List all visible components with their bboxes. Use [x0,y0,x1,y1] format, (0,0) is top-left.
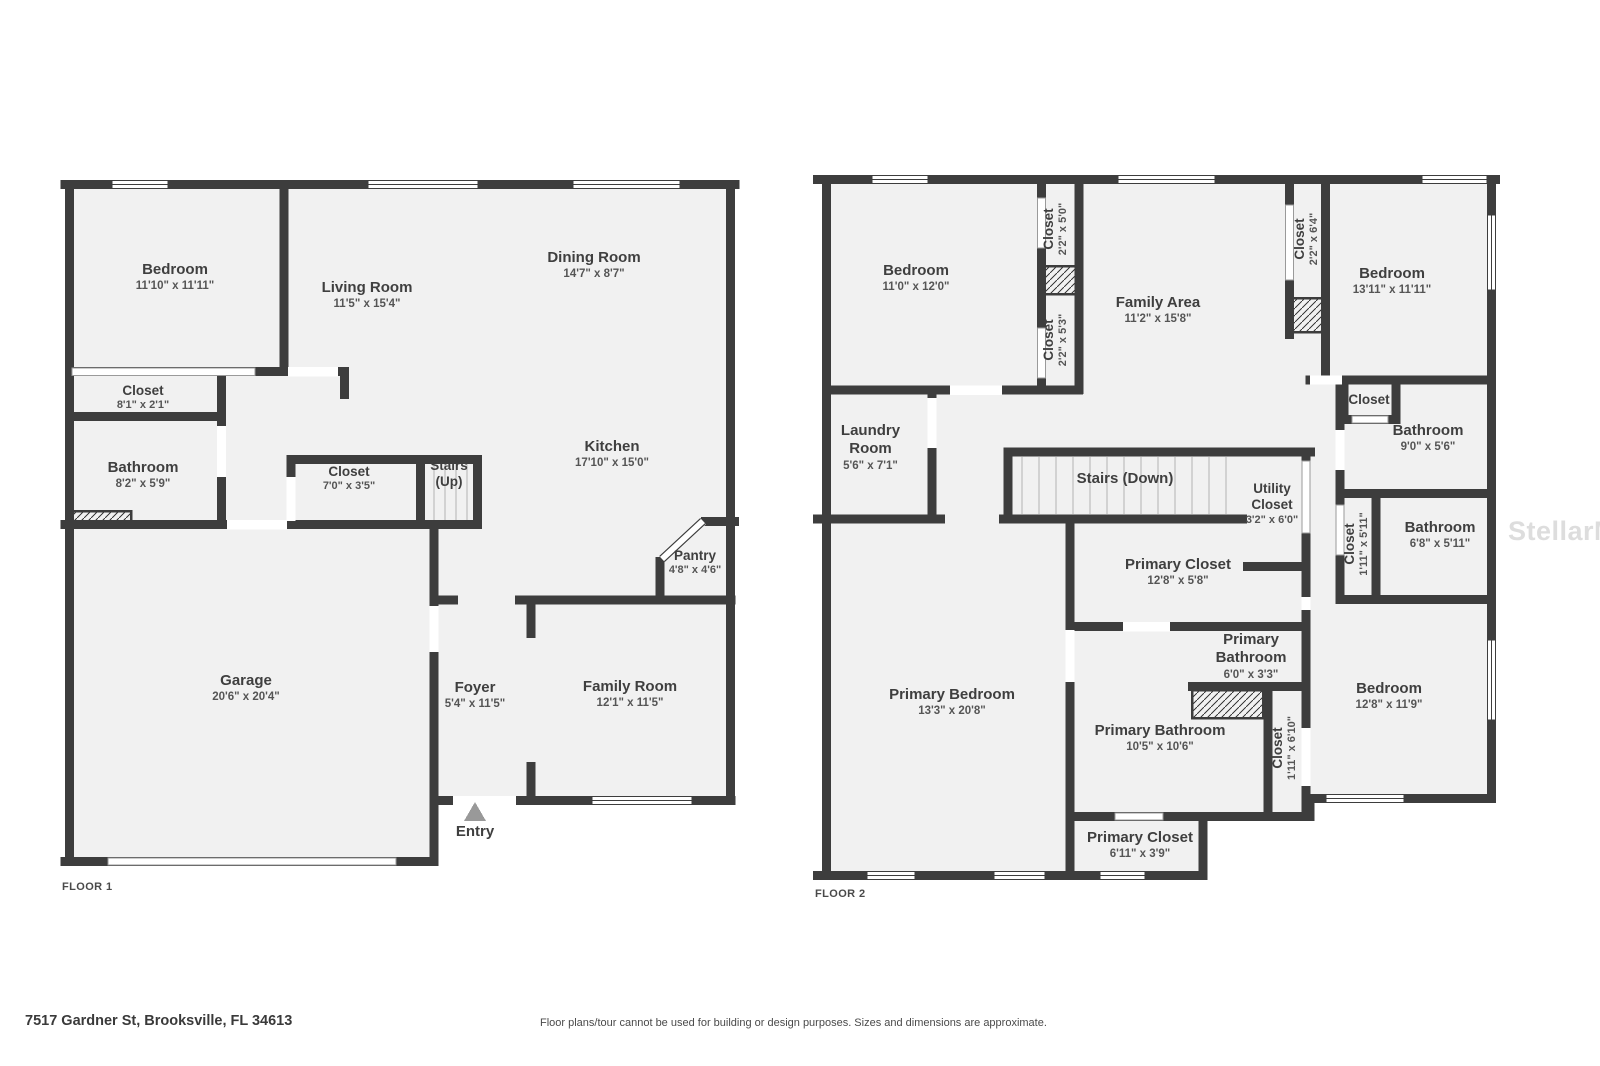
room-label-pantry: Pantry 4'8" x 4'6" [669,548,721,578]
room-label-foyer: Foyer 5'4" x 11'5" [445,679,506,711]
room-label-closet-b: Closet 7'0" x 3'5" [323,464,375,494]
room-label-primary-bathroom-2: Primary Bathroom 10'5" x 10'6" [1095,722,1226,754]
room-label-bathroom-2: Bathroom 6'8" x 5'11" [1405,519,1476,551]
room-label-primary-closet-2: Primary Closet 6'11" x 3'9" [1087,829,1193,861]
room-label-closet-top-1: Closet 2'2" x 5'0" [1041,203,1071,255]
room-label-bathroom-1: Bathroom 9'0" x 5'6" [1393,422,1464,454]
room-label-closet-mid: Closet [1348,392,1389,408]
room-label-kitchen: Kitchen 17'10" x 15'0" [575,438,649,470]
floorplan-canvas: Bedroom 11'10" x 11'11" Living Room 11'5… [0,0,1600,1066]
room-label-living-room: Living Room 11'5" x 15'4" [322,279,413,311]
room-label-garage: Garage 20'6" x 20'4" [212,672,280,704]
room-label-primary-bathroom-1: Primary Bathroom 6'0" x 3'3" [1196,631,1306,682]
stellar-mls-watermark: StellarMLS [1508,516,1600,547]
room-label-closet-top-2: Closet 2'2" x 5'3" [1041,314,1071,366]
room-label-stairs-up: Stairs (Up) [430,458,468,491]
room-label-utility-closet: Utility Closet 3'2" x 6'0" [1232,481,1312,527]
room-label-bedroom-left: Bedroom 11'0" x 12'0" [883,262,950,294]
room-label-closet-top-3: Closet 2'2" x 6'4" [1292,213,1322,265]
room-label-family-room: Family Room 12'1" x 11'5" [583,678,677,710]
room-label-closet-v2: Closet 1'11" x 6'10" [1270,716,1300,780]
floor1-tag: FLOOR 1 [62,881,112,893]
room-label-bedroom-f1: Bedroom 11'10" x 11'11" [136,261,214,293]
room-label-stairs-down: Stairs (Down) [1077,470,1174,488]
room-label-bedroom-3: Bedroom 12'8" x 11'9" [1356,680,1423,712]
room-label-laundry: Laundry Room 5'6" x 7'1" [823,422,918,473]
room-label-primary-bedroom: Primary Bedroom 13'3" x 20'8" [889,686,1015,718]
room-label-dining-room: Dining Room 14'7" x 8'7" [547,249,640,281]
room-label-closet-a: Closet 8'1" x 2'1" [117,383,169,413]
floor1-tub-hatch [67,511,131,526]
room-label-bathroom-f1: Bathroom 8'2" x 5'9" [108,459,179,491]
property-address: 7517 Gardner St, Brooksville, FL 34613 [25,1013,292,1029]
room-label-closet-v1: Closet 1'11" x 5'11" [1342,512,1372,575]
floor2-tag: FLOOR 2 [815,888,865,900]
room-label-primary-closet-1: Primary Closet 12'8" x 5'8" [1125,556,1231,588]
room-label-bedroom-right: Bedroom 13'11" x 11'11" [1353,265,1431,297]
room-label-entry: Entry [456,823,494,841]
room-label-family-area: Family Area 11'2" x 15'8" [1116,294,1201,326]
disclaimer-text: Floor plans/tour cannot be used for buil… [540,1017,1047,1029]
